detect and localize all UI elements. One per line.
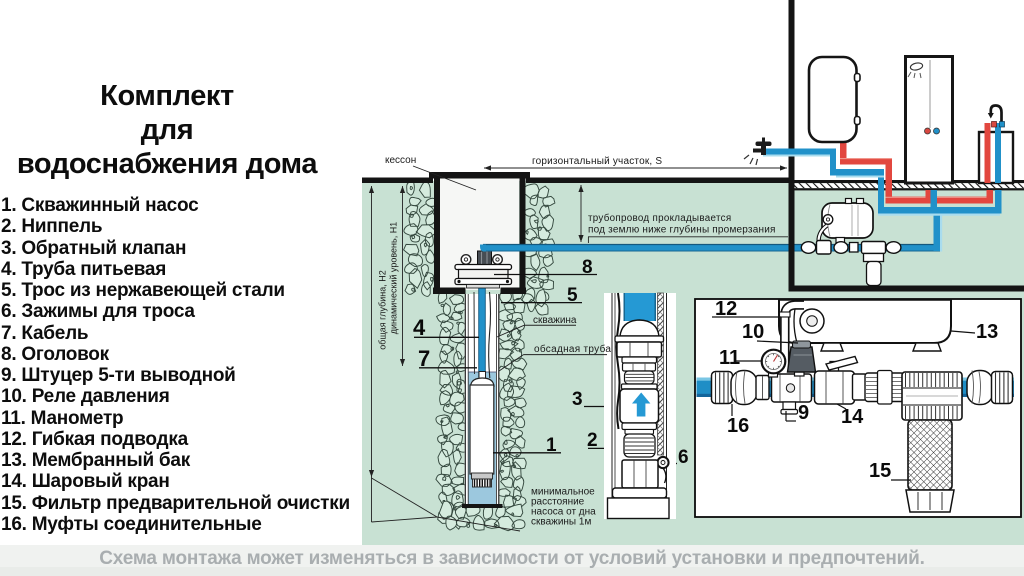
svg-text:11: 11 <box>719 347 740 369</box>
svg-text:обсадная труба: обсадная труба <box>534 343 611 355</box>
svg-text:скважины 1м: скважины 1м <box>531 517 591 528</box>
svg-text:13: 13 <box>976 321 998 343</box>
svg-text:трубопровод прокладывается: трубопровод прокладывается <box>588 213 731 224</box>
svg-text:под землю ниже глубины промерз: под землю ниже глубины промерзания <box>588 224 776 236</box>
svg-text:14: 14 <box>841 406 864 428</box>
svg-text:6: 6 <box>678 447 689 468</box>
svg-text:9: 9 <box>798 402 809 424</box>
svg-text:4: 4 <box>413 315 426 340</box>
svg-text:3: 3 <box>572 389 583 410</box>
svg-text:15: 15 <box>869 460 891 482</box>
svg-text:динамический уровень, Н1: динамический уровень, Н1 <box>389 222 399 334</box>
svg-text:скважина: скважина <box>533 315 577 326</box>
svg-text:кессон: кессон <box>385 155 416 166</box>
svg-text:горизонтальный участок, S: горизонтальный участок, S <box>532 156 662 167</box>
svg-text:16: 16 <box>727 415 749 437</box>
svg-text:общая глубина, Н2: общая глубина, Н2 <box>378 270 388 350</box>
svg-text:10: 10 <box>742 321 764 343</box>
